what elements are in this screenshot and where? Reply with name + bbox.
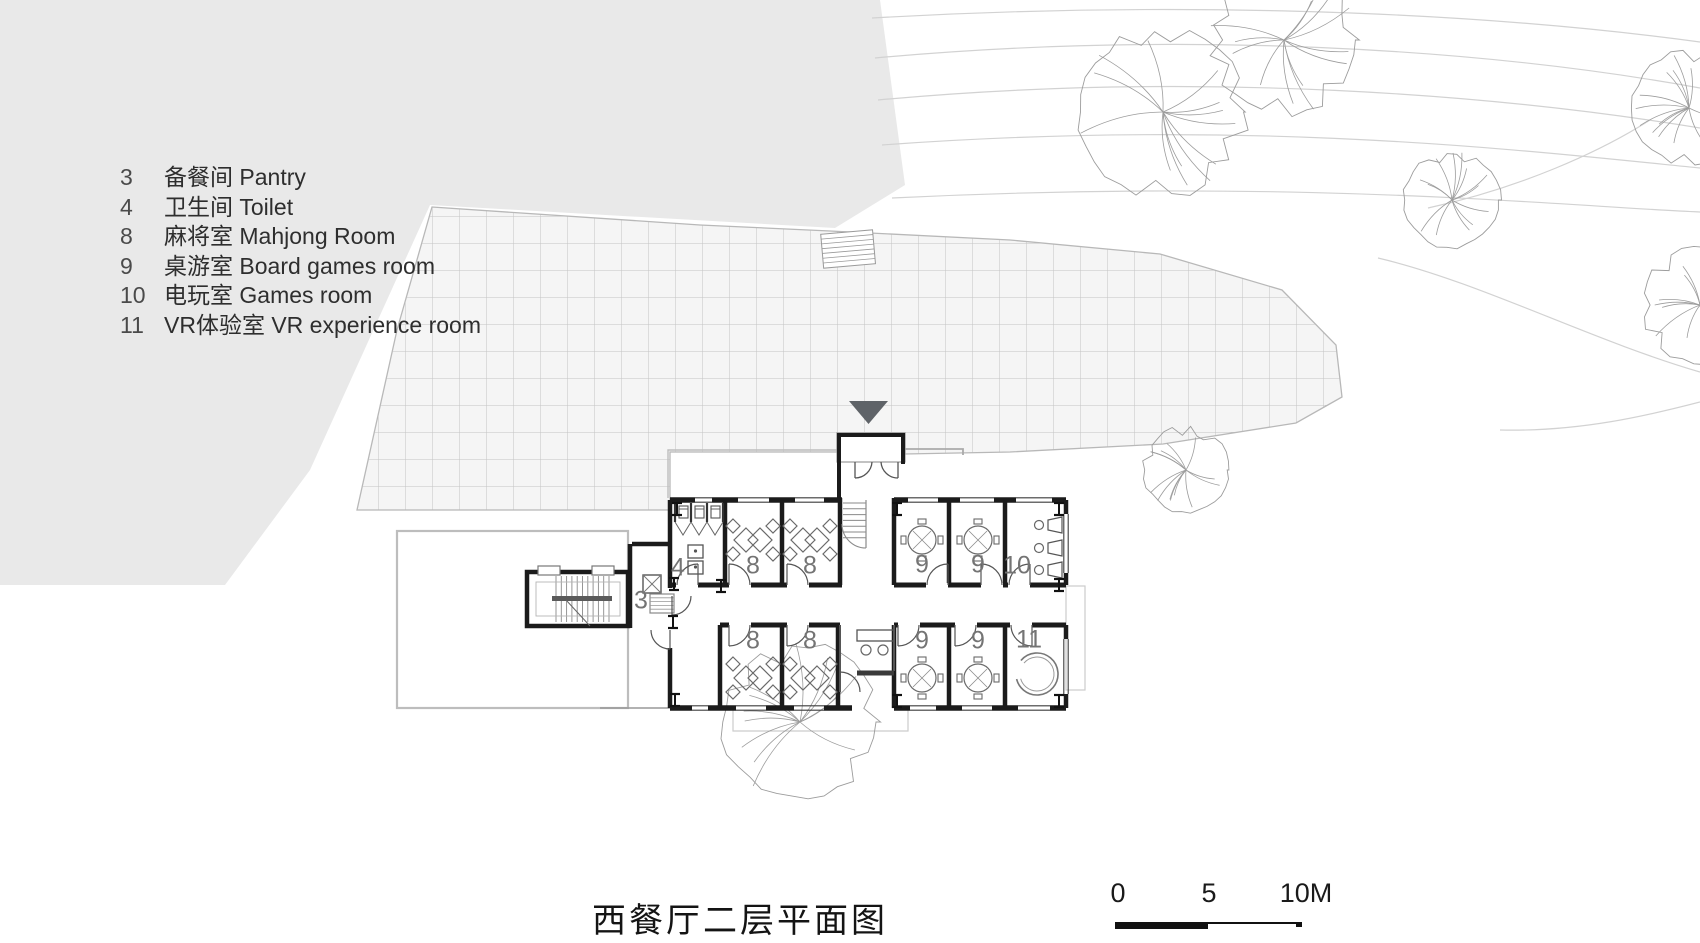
scale-label-10: 10M [1280,878,1333,909]
legend-item-label: 电玩室 Games room [164,281,372,311]
tree [1403,153,1501,249]
drawing-title: 西餐厅二层平面图 [592,893,888,942]
tree [1210,0,1359,117]
legend-item-label: 备餐间 Pantry [164,163,306,193]
legend-item: 8麻将室 Mahjong Room [120,222,481,252]
scale-bar-open-segment [1208,922,1301,924]
legend-item: 9桌游室 Board games room [120,252,481,282]
stairwell [527,566,674,626]
terrace-stair [821,230,876,268]
tree [1644,246,1700,364]
legend-item-label: 麻将室 Mahjong Room [164,222,395,252]
tree [1631,50,1700,165]
legend-item-label: 卫生间 Toilet [164,193,293,223]
scale-label-0: 0 [1110,878,1125,909]
scale-bar-end-tick [1296,922,1302,927]
legend-item-number: 9 [120,252,164,282]
legend-item-label: VR体验室 VR experience room [164,311,481,341]
legend-item: 3备餐间 Pantry [120,163,481,193]
scale-bar: 0 5 10M [1100,878,1340,938]
legend-item-number: 8 [120,222,164,252]
legend-item: 11VR体验室 VR experience room [120,311,481,341]
legend-item: 10电玩室 Games room [120,281,481,311]
legend-item-number: 3 [120,163,164,193]
site-plan-drawing [0,0,1700,943]
legend-item-number: 10 [120,281,164,311]
legend-item-number: 11 [120,311,164,341]
legend-item: 4卫生间 Toilet [120,193,481,223]
legend-item-label: 桌游室 Board games room [164,252,435,282]
legend: 3备餐间 Pantry4卫生间 Toilet8麻将室 Mahjong Room9… [120,163,481,341]
tree [1078,31,1248,196]
legend-item-number: 4 [120,193,164,223]
scale-bar-filled-segment [1115,922,1208,929]
scale-label-5: 5 [1201,878,1216,909]
